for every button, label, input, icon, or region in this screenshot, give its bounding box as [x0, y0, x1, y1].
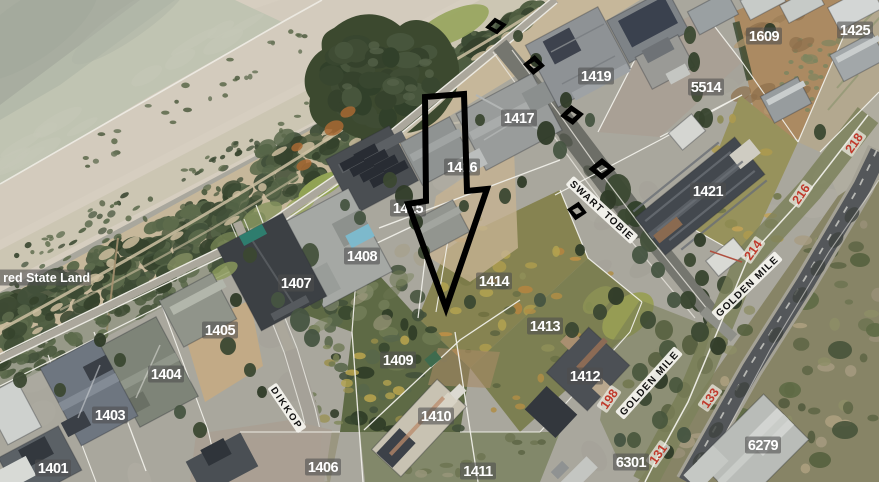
- svg-text:1414: 1414: [479, 274, 510, 290]
- svg-text:1409: 1409: [383, 353, 414, 369]
- svg-text:1609: 1609: [749, 29, 780, 45]
- svg-text:1405: 1405: [205, 323, 236, 339]
- svg-text:6301: 6301: [616, 455, 647, 471]
- svg-text:1408: 1408: [347, 249, 378, 265]
- svg-text:1406: 1406: [308, 460, 339, 476]
- svg-text:1419: 1419: [581, 69, 612, 85]
- svg-text:6279: 6279: [748, 438, 779, 454]
- svg-text:1421: 1421: [693, 184, 724, 200]
- svg-text:1404: 1404: [151, 367, 182, 383]
- svg-text:1410: 1410: [421, 409, 452, 425]
- svg-text:1417: 1417: [504, 111, 535, 127]
- svg-text:1416: 1416: [447, 160, 478, 176]
- svg-text:1425: 1425: [840, 23, 871, 39]
- svg-text:1413: 1413: [530, 319, 561, 335]
- svg-text:5514: 5514: [691, 80, 722, 96]
- svg-text:1412: 1412: [570, 369, 601, 385]
- svg-text:1411: 1411: [463, 464, 493, 480]
- svg-text:1403: 1403: [95, 408, 126, 424]
- svg-text:1401: 1401: [38, 461, 69, 477]
- svg-text:1407: 1407: [281, 276, 312, 292]
- svg-text:red State Land: red State Land: [3, 271, 90, 285]
